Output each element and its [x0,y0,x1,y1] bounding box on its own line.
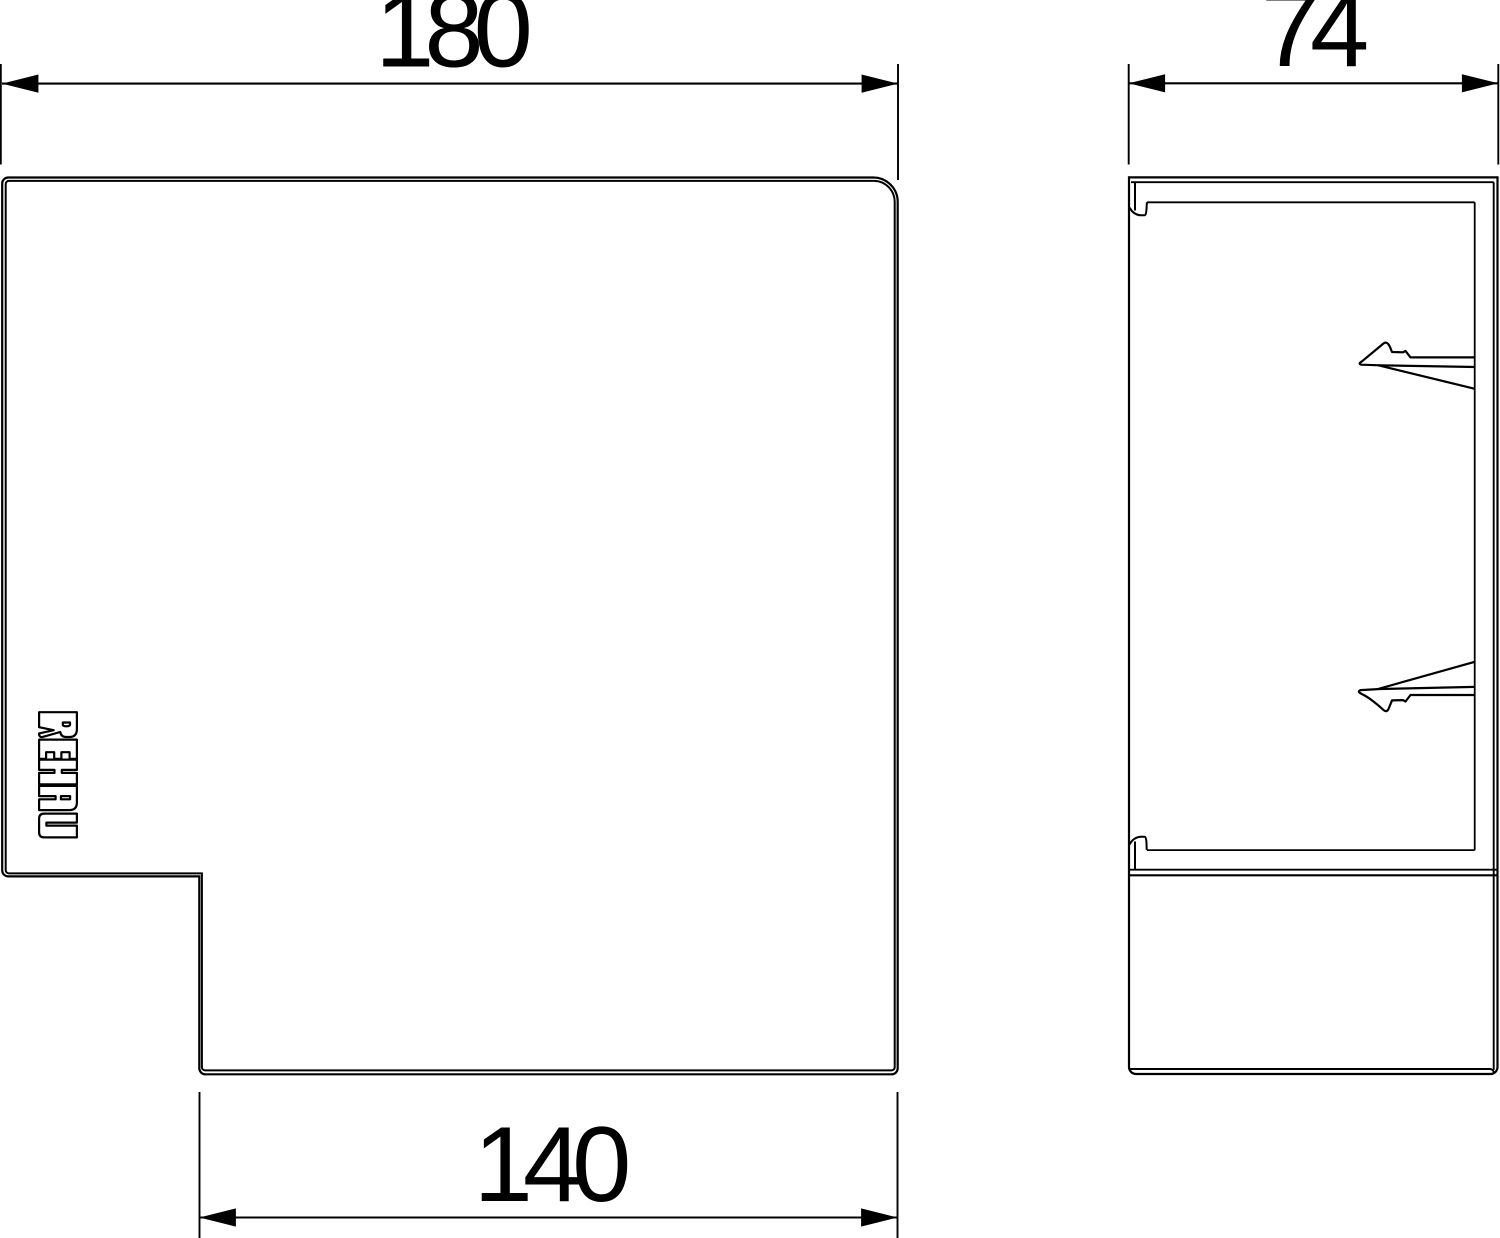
svg-text:74: 74 [1261,0,1367,89]
svg-text:140: 140 [474,1105,628,1224]
svg-text:180: 180 [375,0,529,90]
